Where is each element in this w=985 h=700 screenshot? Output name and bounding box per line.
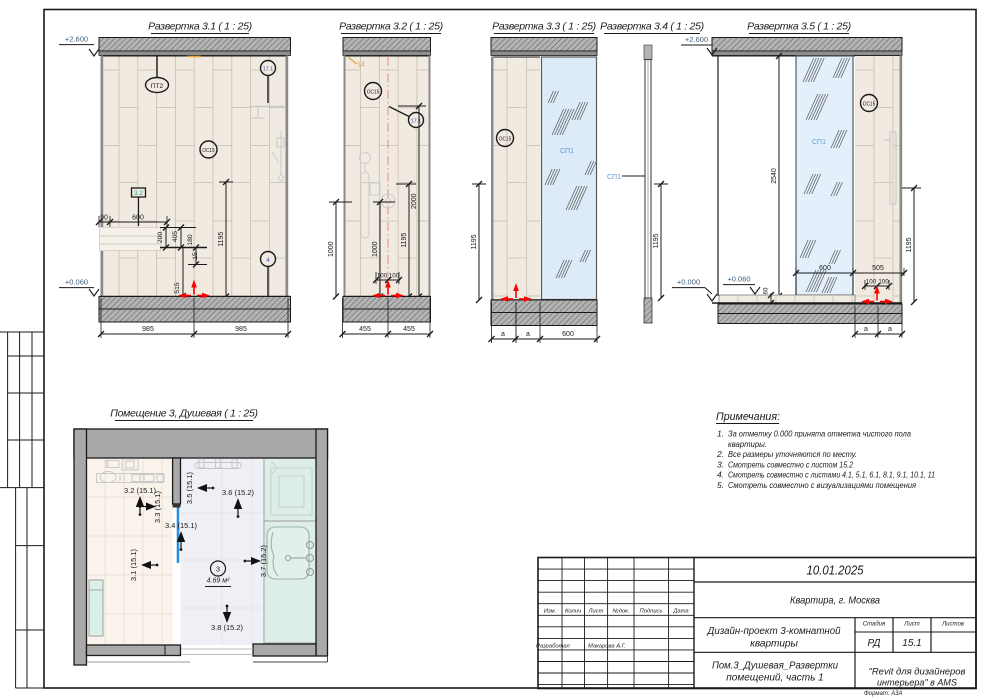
svg-text:4.: 4. <box>717 470 724 480</box>
svg-text:ОС15: ОС15 <box>202 148 215 154</box>
svg-text:1000: 1000 <box>328 241 335 257</box>
svg-text:4.69 м²: 4.69 м² <box>207 578 230 585</box>
svg-text:1000: 1000 <box>372 241 379 257</box>
svg-text:3.1 (15.1): 3.1 (15.1) <box>129 548 138 581</box>
svg-text:17.1: 17.1 <box>263 66 274 72</box>
svg-text:15.1: 15.1 <box>902 638 921 649</box>
svg-text:3.8 (15.2): 3.8 (15.2) <box>211 623 244 632</box>
svg-text:455: 455 <box>403 326 415 333</box>
svg-text:1195: 1195 <box>401 233 408 248</box>
svg-text:интерьера" в AMS: интерьера" в AMS <box>877 678 958 689</box>
svg-text:3.2: 3.2 <box>134 191 144 197</box>
svg-text:3.6 (15.2): 3.6 (15.2) <box>222 488 255 497</box>
svg-text:Смотреть совместно с листами 4: Смотреть совместно с листами 4.1, 5.1, 6… <box>728 470 935 480</box>
svg-text:Развертка 3.5 ( 1 : 25): Развертка 3.5 ( 1 : 25) <box>747 21 851 33</box>
svg-text:СП1: СП1 <box>560 148 574 155</box>
svg-text:3.4 (15.1): 3.4 (15.1) <box>165 521 198 530</box>
svg-text:a: a <box>888 326 892 333</box>
svg-text:3.2 (15.1): 3.2 (15.1) <box>124 486 157 495</box>
svg-text:Разработал: Разработал <box>536 644 571 650</box>
svg-text:17.1: 17.1 <box>411 118 422 124</box>
svg-text:100: 100 <box>377 273 388 280</box>
svg-text:Дата: Дата <box>672 609 689 615</box>
svg-text:+2.600: +2.600 <box>65 35 88 44</box>
svg-text:Смотреть совместно с листом 15: Смотреть совместно с листом 15.2 <box>728 459 853 469</box>
svg-text:РД: РД <box>868 638 881 649</box>
svg-text:квартиры: квартиры <box>750 639 798 650</box>
svg-text:3: 3 <box>216 565 220 574</box>
svg-text:10.01.2025: 10.01.2025 <box>807 563 865 578</box>
svg-text:1195: 1195 <box>653 233 660 248</box>
svg-text:Подпись: Подпись <box>640 609 663 615</box>
svg-text:455: 455 <box>359 326 371 333</box>
svg-text:Квартира, г. Москва: Квартира, г. Москва <box>790 596 880 607</box>
svg-text:Развертка 3.3 ( 1 : 25): Развертка 3.3 ( 1 : 25) <box>492 21 596 33</box>
svg-text:100: 100 <box>878 279 889 286</box>
svg-text:За отметку 0.000 принята отмет: За отметку 0.000 принята отметка чистого… <box>728 429 911 439</box>
svg-text:№док.: №док. <box>612 609 629 615</box>
svg-text:3.5 (15.1): 3.5 (15.1) <box>185 471 194 504</box>
svg-text:Развертка 3.4 ( 1 : 25): Развертка 3.4 ( 1 : 25) <box>600 21 704 33</box>
svg-text:100: 100 <box>866 279 877 286</box>
svg-text:600: 600 <box>132 215 144 222</box>
svg-text:600: 600 <box>819 265 831 272</box>
svg-text:2000: 2000 <box>411 193 418 209</box>
svg-text:+0.060: +0.060 <box>65 278 88 287</box>
svg-text:a: a <box>526 331 530 338</box>
svg-text:ОС15: ОС15 <box>367 89 380 95</box>
svg-text:2540: 2540 <box>771 168 778 184</box>
svg-text:5.: 5. <box>717 480 724 490</box>
svg-text:985: 985 <box>142 326 154 333</box>
svg-text:Колич: Колич <box>565 609 581 615</box>
svg-text:505: 505 <box>872 265 884 272</box>
svg-text:2.: 2. <box>716 449 724 459</box>
svg-text:ОС15: ОС15 <box>499 136 512 142</box>
svg-text:Макарова А.Г.: Макарова А.Г. <box>588 644 626 650</box>
svg-text:3.: 3. <box>717 459 724 469</box>
svg-text:1195: 1195 <box>906 237 913 252</box>
svg-text:ОС15: ОС15 <box>863 101 876 107</box>
svg-text:ПТ2: ПТ2 <box>151 83 164 90</box>
svg-text:Изм.: Изм. <box>544 609 556 615</box>
svg-text:Помещение 3, Душевая ( 1 : 25): Помещение 3, Душевая ( 1 : 25) <box>110 408 257 420</box>
svg-text:1.: 1. <box>717 429 724 439</box>
svg-text:4: 4 <box>266 257 270 264</box>
svg-text:600: 600 <box>562 331 574 338</box>
svg-text:СП1: СП1 <box>812 139 826 146</box>
svg-text:90: 90 <box>100 215 108 222</box>
svg-text:+0.000: +0.000 <box>677 278 700 287</box>
svg-text:+0.060: +0.060 <box>727 275 750 284</box>
svg-text:15: 15 <box>192 252 199 260</box>
svg-text:515: 515 <box>174 282 181 294</box>
svg-text:Пом.3_Душевая_Развертки: Пом.3_Душевая_Развертки <box>712 661 838 672</box>
svg-text:"Revit для дизайнеров: "Revit для дизайнеров <box>869 667 966 678</box>
svg-text:1195: 1195 <box>218 232 225 247</box>
svg-text:1195: 1195 <box>471 234 478 249</box>
svg-text:Формат: А3А: Формат: А3А <box>864 691 903 697</box>
svg-text:Дизайн-проект 3-комнатной: Дизайн-проект 3-комнатной <box>707 626 841 637</box>
svg-text:Смотреть совместно с визуализа: Смотреть совместно с визуализациями поме… <box>728 480 916 490</box>
svg-text:+2.600: +2.600 <box>685 35 708 44</box>
svg-text:Листов: Листов <box>941 622 964 628</box>
svg-text:Все размеры уточняются по мест: Все размеры уточняются по месту. <box>728 449 857 459</box>
svg-text:405: 405 <box>172 231 179 243</box>
svg-text:помещений, часть 1: помещений, часть 1 <box>726 673 823 684</box>
svg-text:a: a <box>864 326 868 333</box>
svg-text:Примечания:: Примечания: <box>716 411 780 423</box>
svg-text:100: 100 <box>389 273 400 280</box>
svg-text:200: 200 <box>157 232 164 244</box>
svg-text:Развертка 3.1 ( 1 : 25): Развертка 3.1 ( 1 : 25) <box>148 21 252 33</box>
svg-text:СП1: СП1 <box>607 174 621 181</box>
svg-text:985: 985 <box>235 326 247 333</box>
svg-text:квартиры.: квартиры. <box>728 439 767 449</box>
svg-text:Развертка 3.2 ( 1 : 25): Развертка 3.2 ( 1 : 25) <box>339 21 443 33</box>
svg-text:60: 60 <box>763 287 770 294</box>
svg-text:180: 180 <box>187 234 194 246</box>
svg-text:Лист: Лист <box>903 622 919 628</box>
svg-text:14: 14 <box>357 62 365 69</box>
svg-text:Стадия: Стадия <box>863 622 886 628</box>
svg-text:Лист: Лист <box>588 609 604 615</box>
svg-text:a: a <box>501 331 505 338</box>
